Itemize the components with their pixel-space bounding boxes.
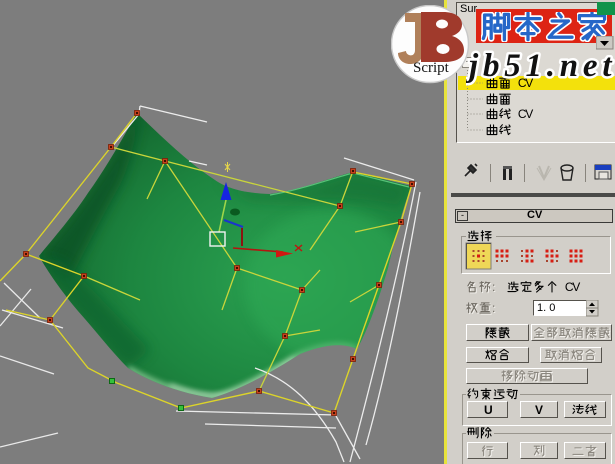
svg-text:V: V (535, 404, 543, 417)
svg-text:Script: Script (413, 60, 450, 76)
svg-text:V: V (572, 281, 580, 294)
svg-text:jb51.net: jb51.net (466, 48, 613, 84)
svg-text:U: U (484, 404, 493, 417)
svg-text::: : (492, 281, 495, 294)
svg-text::: : (492, 302, 495, 315)
svg-text:V: V (525, 108, 533, 121)
